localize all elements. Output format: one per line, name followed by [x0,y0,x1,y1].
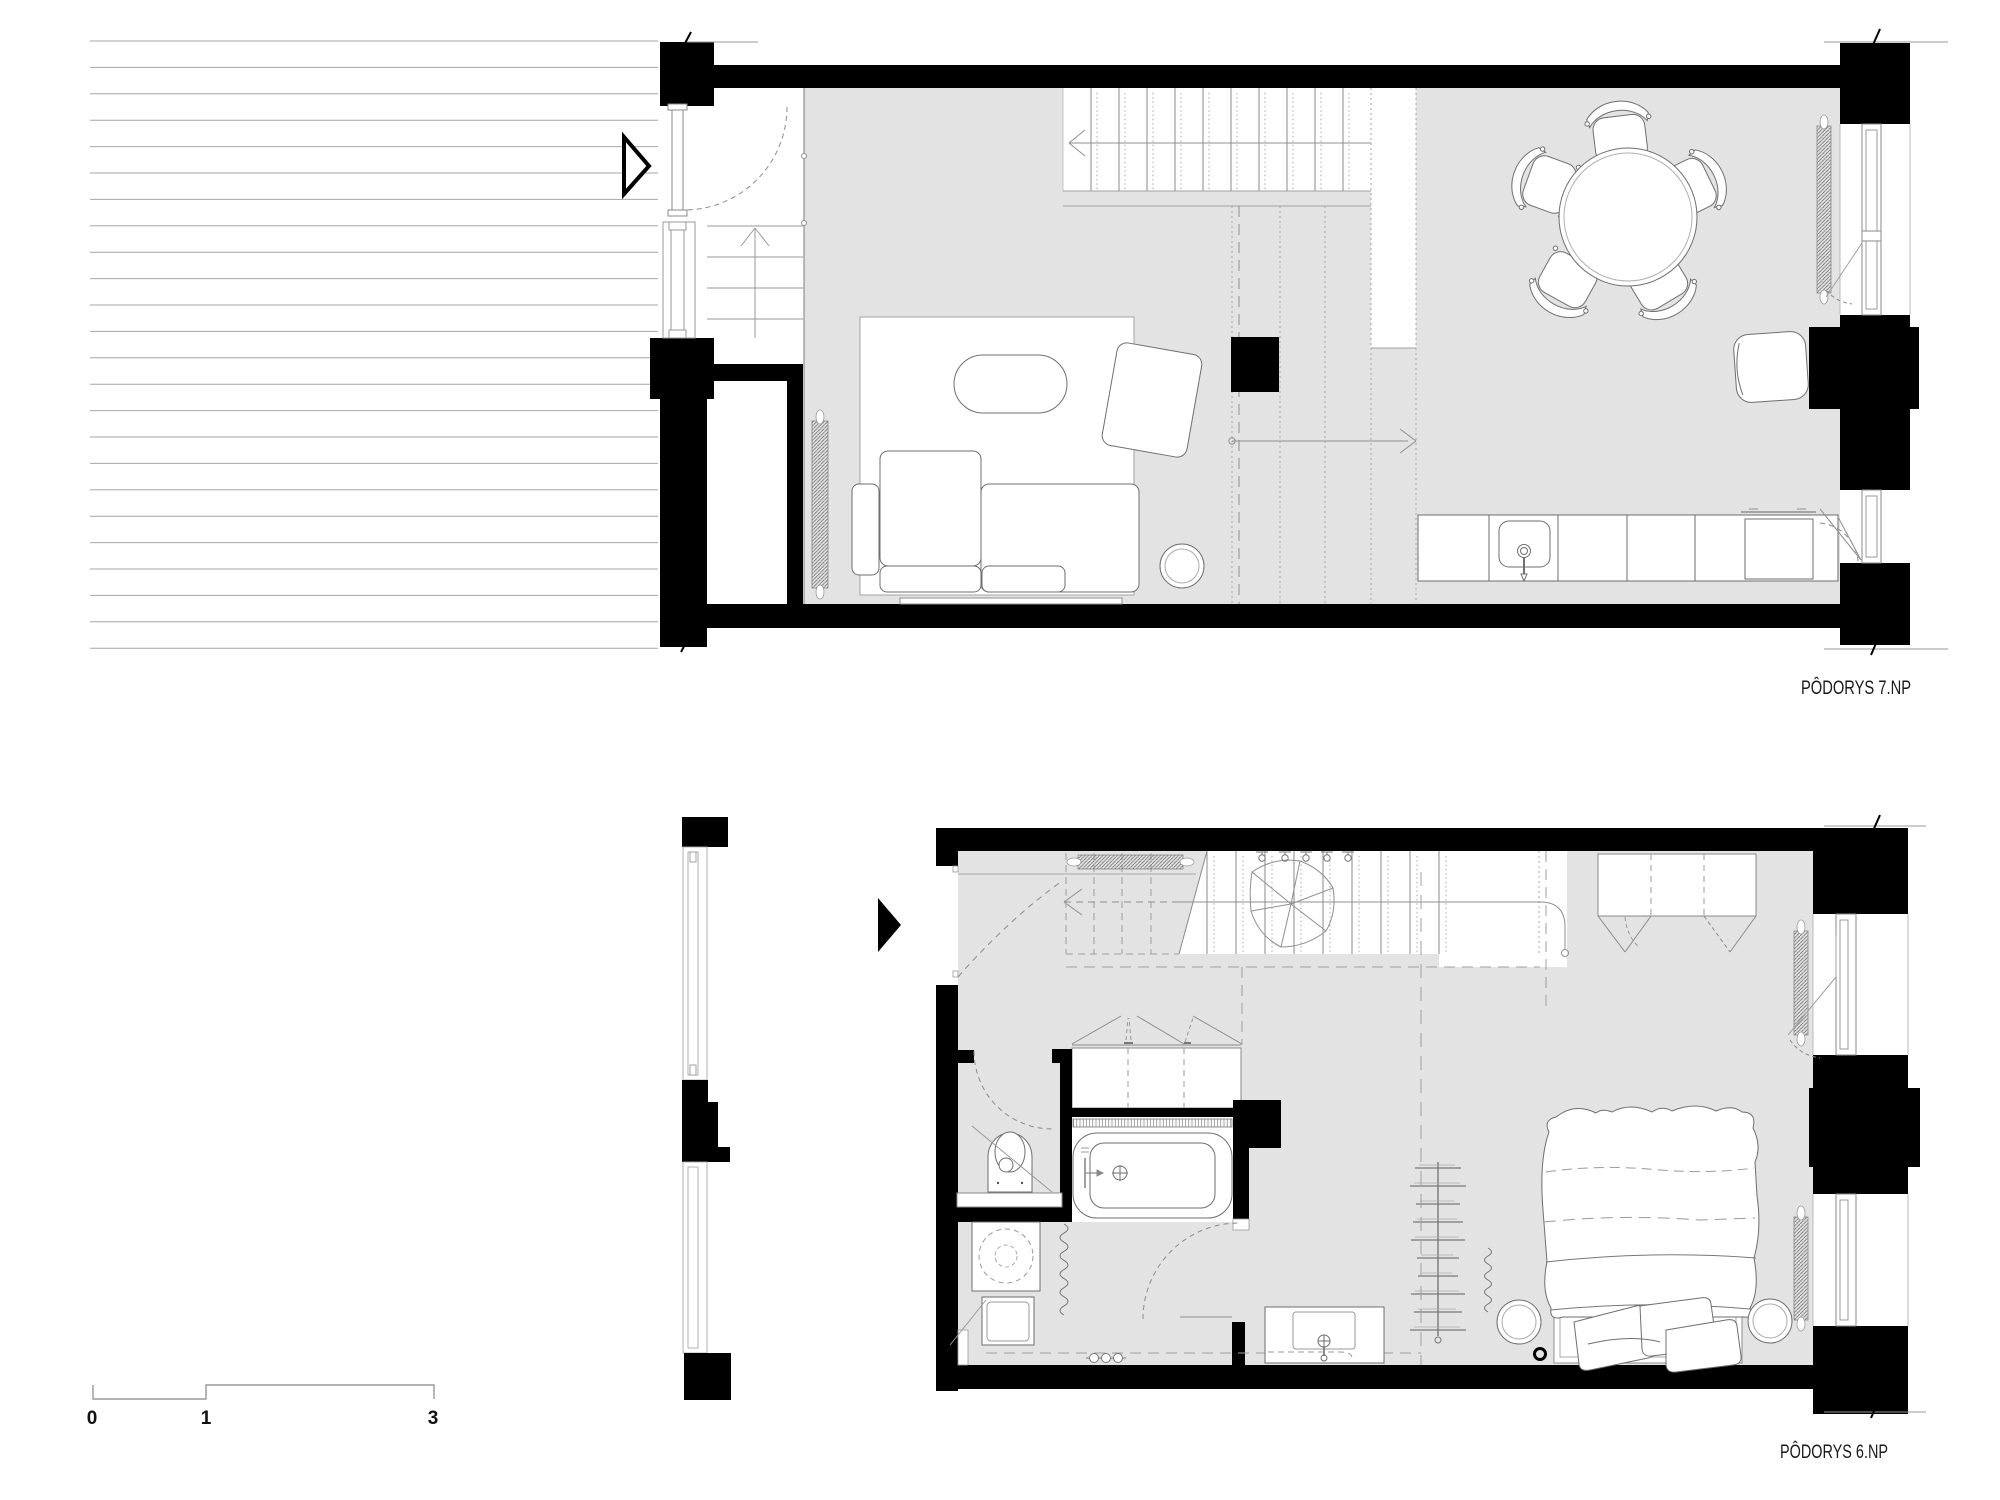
svg-text:3: 3 [428,1408,439,1429]
svg-text:PÔDORYS 7.NP: PÔDORYS 7.NP [1801,676,1911,699]
svg-text:0: 0 [87,1408,98,1429]
svg-text:PÔDORYS 6.NP: PÔDORYS 6.NP [1780,1440,1888,1463]
svg-text:1: 1 [201,1408,212,1429]
